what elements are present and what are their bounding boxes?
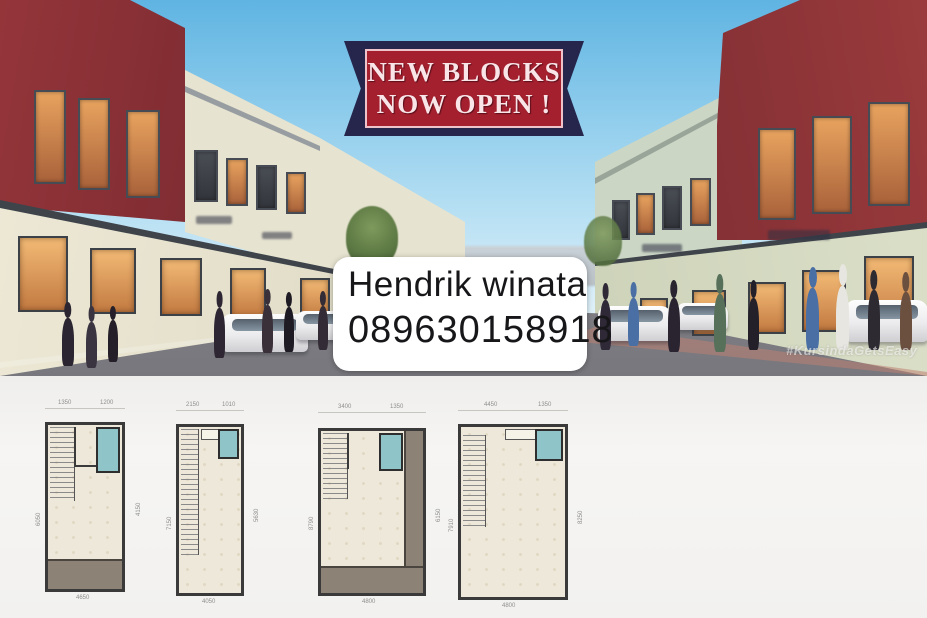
person [668,298,680,352]
contact-name: Hendrik winata [348,265,587,305]
person [214,308,225,358]
dim-line [458,410,568,411]
person [900,292,912,350]
photo-watermark: #KursindaGetsEasy [786,343,917,358]
window [286,172,306,214]
shop-sign [196,216,232,224]
dim-line [318,412,426,413]
carport [48,559,122,589]
shop-sign [262,232,292,239]
stairs [50,427,75,501]
dim-line [176,410,244,411]
new-blocks-banner: NEW BLOCKS NOW OPEN ! [344,41,584,136]
storefront [160,258,202,316]
interior-wall [74,427,76,467]
dim-label: 4450 [484,402,497,408]
dim-label: 6150 [436,509,442,522]
person [262,305,273,353]
person [836,286,849,350]
car [846,300,927,342]
dim-label: 1200 [100,400,113,406]
storefront [230,268,266,318]
interior-wall [347,433,349,469]
person [108,320,118,362]
tree [584,216,622,266]
ad-poster: NEW BLOCKS NOW OPEN ! #KursindaGetsEasy … [0,0,927,618]
window [758,128,796,220]
dim-label: 8250 [578,511,584,524]
person [748,298,759,350]
dim-label: 1350 [390,404,403,410]
dim-label: 4800 [502,603,515,609]
window [690,178,711,226]
dim-label: 1350 [58,400,71,406]
bathroom [535,429,563,461]
contact-card: Hendrik winata 089630158918 [333,257,587,371]
dim-label: 1010 [222,402,235,408]
banner-line2: NOW OPEN ! [377,89,552,120]
plan-walls [318,428,426,596]
dim-label: 2150 [186,402,199,408]
window [34,90,66,184]
plan-walls [45,422,125,592]
dim-label: 4150 [136,503,142,516]
dim-label: 4050 [202,599,215,605]
person [868,290,880,350]
floor-plan-2: 2150 1010 7150 5630 4050 [162,398,272,603]
person [318,306,328,350]
stairs [323,433,348,499]
floor-plan-3: 3400 1350 8790 6150 4800 [304,400,444,605]
street-render-photo: NEW BLOCKS NOW OPEN ! #KursindaGetsEasy … [0,0,927,376]
person [714,294,726,352]
stairs [463,435,486,527]
floor-plan-4: 4450 1350 7910 8250 4800 [444,398,584,608]
banner-line1: NEW BLOCKS [367,57,560,88]
person [62,318,74,366]
dim-label: 5630 [254,509,260,522]
shop-sign [768,230,830,240]
shop-sign [642,244,682,252]
dim-label: 6050 [36,513,42,526]
info-section: 1350 1200 6050 4150 4650 2150 1010 [0,376,927,618]
person [86,322,97,368]
window [812,116,852,214]
window [256,165,277,210]
person [806,288,819,350]
dim-label: 3400 [338,404,351,410]
window [194,150,218,202]
dim-label: 8790 [309,517,315,530]
contact-phone: 089630158918 [348,309,587,352]
window [126,110,160,198]
dim-label: 4650 [76,595,89,601]
dim-label: 7150 [167,517,173,530]
banner-plate: NEW BLOCKS NOW OPEN ! [365,49,563,128]
dim-line [45,408,125,409]
plan-walls [458,424,568,600]
window [78,98,110,190]
storefront [18,236,68,312]
window [226,158,248,206]
bathroom [379,433,403,471]
window [636,193,655,235]
window [662,186,682,230]
dim-label: 4800 [362,599,375,605]
dim-label: 1350 [538,402,551,408]
floor-plan-1: 1350 1200 6050 4150 4650 [30,396,150,601]
bathroom [96,427,120,473]
stairs [181,429,199,555]
plan-walls [176,424,244,596]
storefront [90,248,136,314]
person [284,307,294,352]
person [628,298,639,346]
dim-label: 7910 [449,519,455,532]
terrace [321,566,423,593]
window [868,102,910,206]
bathroom [218,429,239,459]
